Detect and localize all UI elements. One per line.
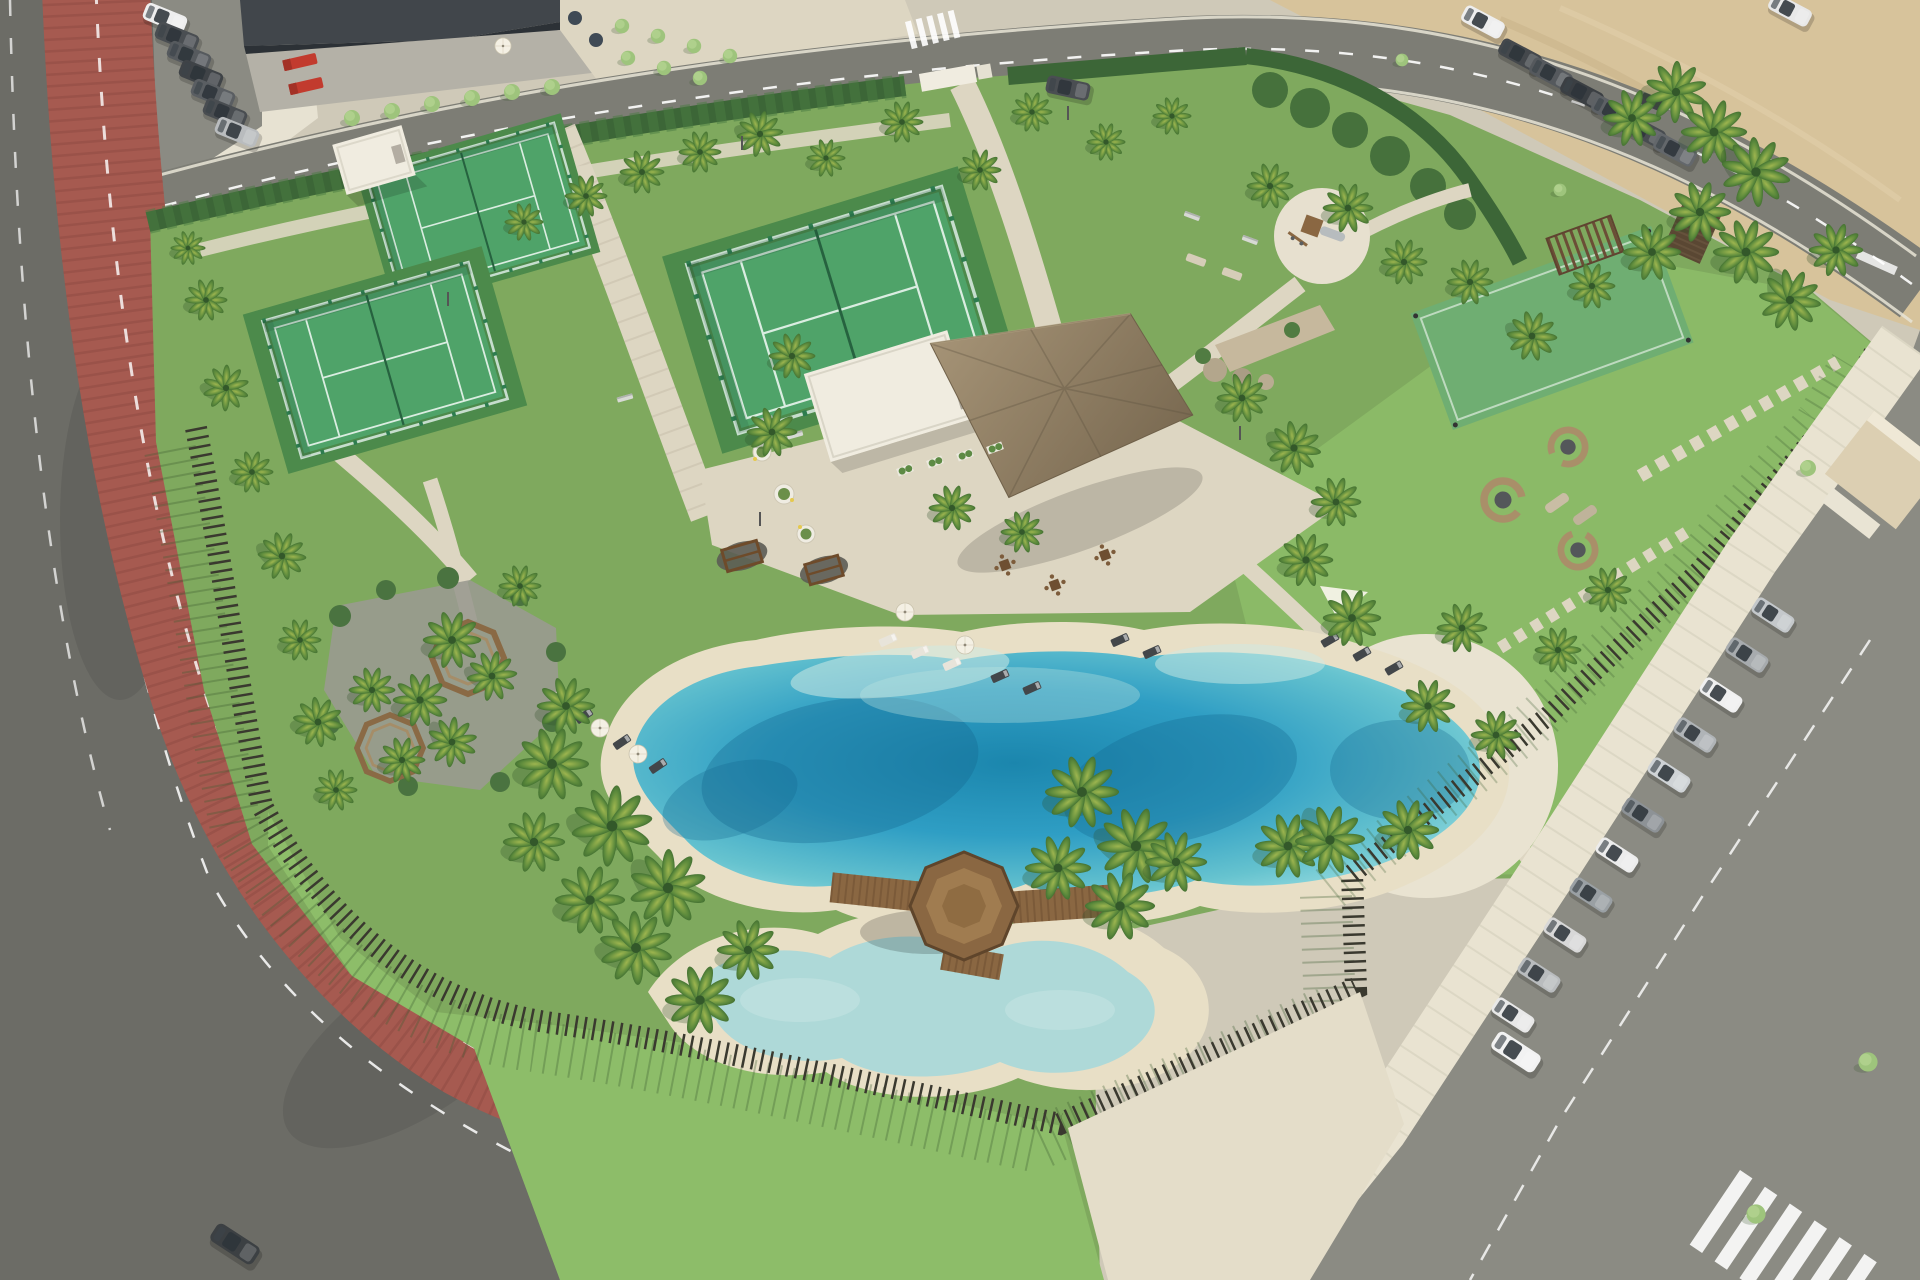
dark-parasol [589,33,603,47]
parasol [591,719,609,737]
parasol [956,636,974,654]
octagonal-gazebo [910,852,1018,960]
white-parasol [495,38,511,54]
aerial-photo [0,0,1920,1280]
dark-parasol [568,11,582,25]
parasol [896,603,914,621]
parasol [629,745,647,763]
